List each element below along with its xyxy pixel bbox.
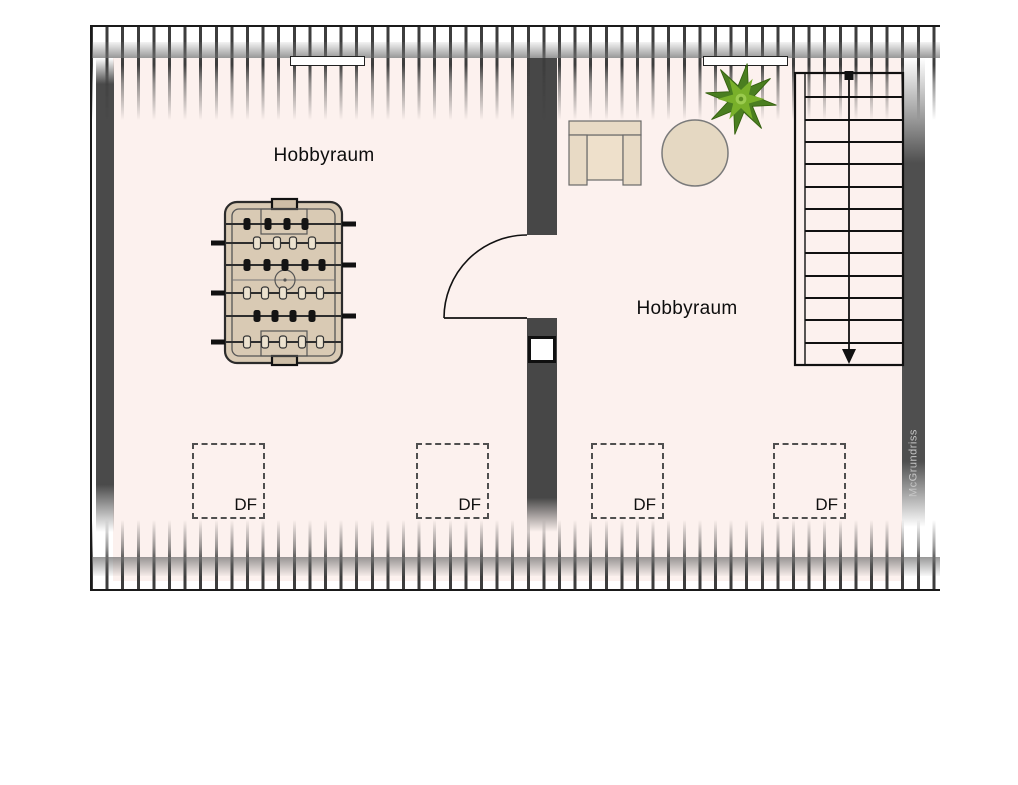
roof-window-df-3: DF	[591, 443, 664, 519]
roof-window-strip-right	[703, 56, 788, 66]
plan-border-bottom	[90, 589, 940, 591]
roof-hatch-bottom	[90, 520, 940, 591]
df-label: DF	[633, 495, 656, 515]
roof-window-df-2: DF	[416, 443, 489, 519]
df-label: DF	[234, 495, 257, 515]
room-label-hobbyraum-right: Hobbyraum	[637, 298, 738, 320]
roof-window-df-4: DF	[773, 443, 846, 519]
knee-wall-bottom	[90, 557, 940, 576]
roof-window-strip-left	[290, 56, 365, 66]
plan-border-top	[90, 25, 940, 27]
floor-plan: Hobbyraum Hobbyraum DF DF DF DF McGrundr…	[90, 25, 940, 591]
df-label: DF	[458, 495, 481, 515]
watermark-text: McGrundriss	[902, 428, 925, 498]
roof-window-df-1: DF	[192, 443, 265, 519]
room-label-hobbyraum-left: Hobbyraum	[274, 145, 375, 167]
knee-wall-top	[90, 42, 940, 58]
df-label: DF	[815, 495, 838, 515]
chimney	[528, 336, 556, 363]
plan-border-left	[90, 25, 92, 591]
floor-plan-page: Hobbyraum Hobbyraum DF DF DF DF McGrundr…	[0, 0, 1018, 785]
